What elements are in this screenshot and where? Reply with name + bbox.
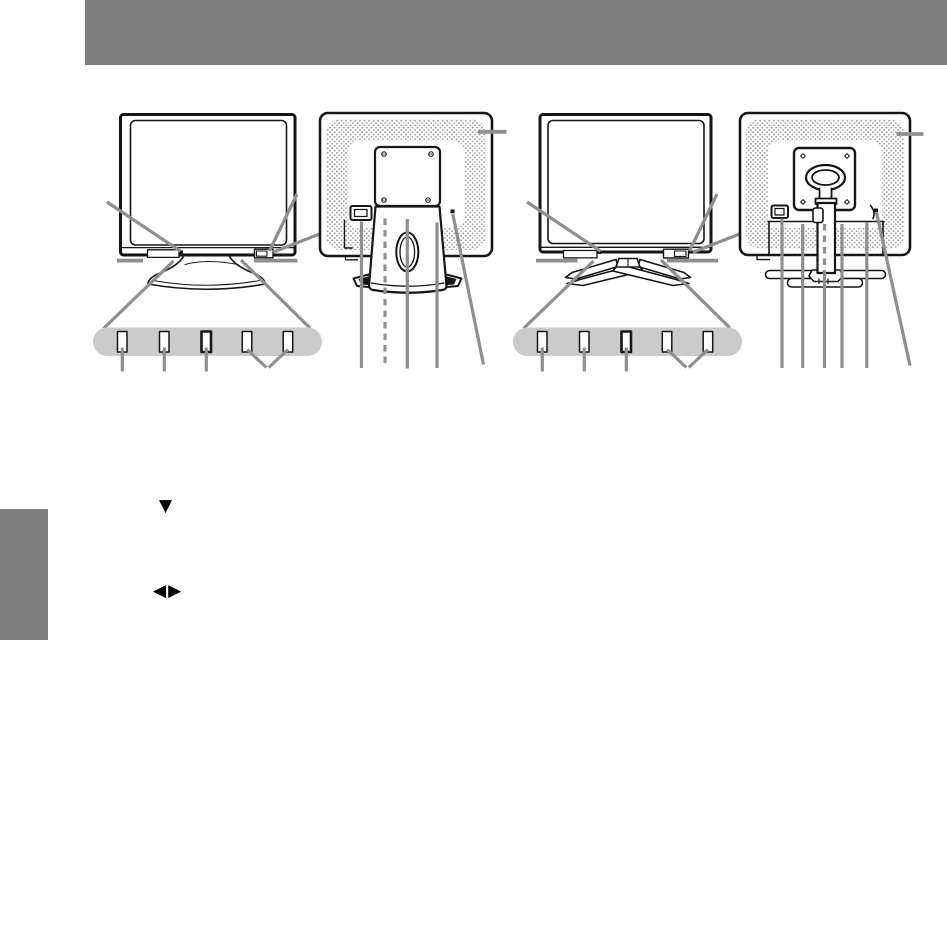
power-button-cap [257,251,268,256]
screen [548,121,704,244]
power-connector-socket [355,210,368,217]
stand-ring-handle-inner [812,170,839,185]
lock-slot [451,210,455,214]
button-strip-housing [148,250,180,258]
power-connector-socket [775,209,784,216]
control-button-5 [283,332,293,353]
screen [131,121,287,246]
power-button-cap [675,251,687,256]
figure-canvas [0,0,947,935]
control-buttons-magnified-view [513,328,742,372]
column-release-clip [813,208,823,223]
control-button-5 [703,332,713,353]
monitor-1-rear-view [320,113,507,369]
lock-slot [874,209,878,213]
button-strip-housing [564,251,598,258]
pedestal-stand [148,256,265,290]
monitor-2-front-view [513,115,742,372]
control-button-4 [242,332,252,353]
monitor-2-rear-view [740,113,924,368]
control-buttons-magnified-view [93,328,322,372]
control-button-4 [662,332,672,353]
monitor-1-front-view [93,115,322,372]
